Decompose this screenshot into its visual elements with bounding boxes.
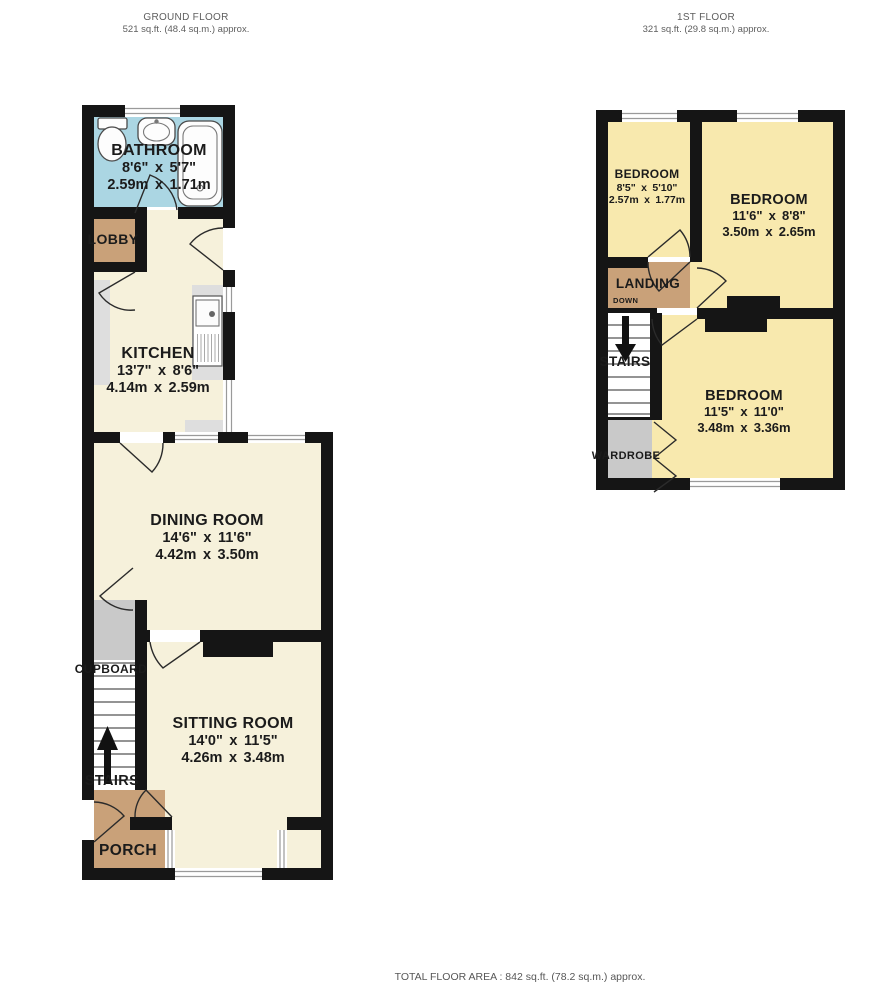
wall (223, 312, 235, 380)
dining-room-dims-m: 4.42m x 3.50m (94, 547, 320, 564)
bedroom-front-area (690, 262, 702, 308)
sitting-room-name: SITTING ROOM (122, 715, 344, 733)
wall (262, 868, 333, 880)
wall (677, 110, 737, 122)
wall (287, 817, 333, 830)
wall (833, 110, 845, 490)
window (277, 830, 287, 868)
wardrobe-label: WARDROBE (586, 450, 666, 462)
chimney-breast (203, 642, 273, 657)
wall (321, 432, 333, 880)
bedroom-small-dims-m: 2.57m x 1.77m (600, 194, 694, 207)
basin-tap-icon (154, 119, 158, 123)
window (737, 110, 798, 122)
wall (798, 110, 845, 122)
wall (82, 868, 175, 880)
bedroom-back-name: BEDROOM (658, 388, 830, 404)
wall (697, 308, 833, 319)
bedroom-small-dims-ft: 8'5" x 5'10" (600, 182, 694, 195)
wardrobe-area (608, 420, 652, 478)
bedroom-back-dims-m: 3.48m x 3.36m (658, 420, 830, 436)
bedroom-front-dims-m: 3.50m x 2.65m (704, 224, 834, 240)
window (690, 478, 780, 490)
bedroom-small-label: BEDROOM 8'5" x 5'10" 2.57m x 1.77m (600, 168, 694, 207)
window (622, 110, 677, 122)
bedroom-front-label: BEDROOM 11'6" x 8'8" 3.50m x 2.65m (704, 192, 834, 239)
window (223, 287, 235, 312)
wall (218, 432, 248, 443)
window (165, 830, 175, 868)
chimney-breast (727, 296, 780, 308)
wall (780, 478, 845, 490)
wall (130, 817, 172, 830)
cupboard-area (94, 600, 135, 660)
bedroom-front-name: BEDROOM (704, 192, 834, 208)
wall (608, 417, 650, 420)
stairs-down-arrow (622, 316, 629, 346)
floorplan-canvas: GROUND FLOOR 521 sq.ft. (48.4 sq.m.) app… (0, 0, 886, 994)
wall (163, 432, 175, 443)
dining-room-label: DINING ROOM 14'6" x 11'6" 4.42m x 3.50m (94, 512, 320, 564)
wall (596, 478, 690, 490)
total-floor-area: TOTAL FLOOR AREA : 842 sq.ft. (78.2 sq.m… (300, 971, 740, 983)
lobby-label: LOBBY (84, 231, 142, 247)
wall (82, 207, 135, 219)
wall (596, 110, 622, 122)
wall (608, 308, 657, 313)
bedroom-back-label: BEDROOM 11'5" x 11'0" 3.48m x 3.36m (658, 388, 830, 435)
dining-room-dims-ft: 14'6" x 11'6" (94, 530, 320, 547)
bathroom-dims-ft: 8'6" x 5'7" (94, 160, 224, 177)
bathroom-dims-m: 2.59m x 1.71m (94, 177, 224, 194)
sitting-room-label: SITTING ROOM 14'0" x 11'5" 4.26m x 3.48m (122, 715, 344, 767)
chimney-breast (705, 319, 767, 332)
ground-stairs-label: STAIRS (80, 773, 144, 789)
window (223, 380, 235, 432)
wall (200, 630, 333, 642)
wall (596, 110, 608, 490)
wall (178, 207, 235, 219)
kitchen-dims-m: 4.14m x 2.59m (92, 380, 224, 397)
kitchen-counter-bottom (185, 420, 223, 432)
window (175, 868, 262, 880)
kitchen-label: KITCHEN 13'7" x 8'6" 4.14m x 2.59m (92, 345, 224, 397)
bedroom-front-dims-ft: 11'6" x 8'8" (704, 208, 834, 224)
dining-room-name: DINING ROOM (94, 512, 320, 530)
wall (223, 270, 235, 287)
sitting-room-dims-ft: 14'0" x 11'5" (122, 733, 344, 750)
porch-label: PORCH (93, 842, 163, 860)
sitting-room-dims-m: 4.26m x 3.48m (122, 750, 344, 767)
window (175, 432, 218, 443)
sink-bowl-icon (196, 300, 219, 326)
bathroom-label: BATHROOM 8'6" x 5'7" 2.59m x 1.71m (94, 142, 224, 194)
window (125, 105, 180, 117)
wall (82, 262, 135, 272)
wall (596, 257, 648, 268)
cupboard-label: CUPBOARD (72, 662, 150, 676)
bathroom-name: BATHROOM (94, 142, 224, 160)
bedroom-back-dims-ft: 11'5" x 11'0" (658, 404, 830, 420)
landing-down-label: DOWN (613, 296, 657, 305)
wall (82, 432, 120, 443)
first-stairs-label: STAIRS (592, 354, 658, 369)
window (248, 432, 305, 443)
landing-label: LANDING (606, 276, 690, 291)
bedroom-small-name: BEDROOM (600, 168, 694, 182)
kitchen-dims-ft: 13'7" x 8'6" (92, 363, 224, 380)
sink-tap-icon (209, 311, 215, 317)
kitchen-name: KITCHEN (92, 345, 224, 363)
